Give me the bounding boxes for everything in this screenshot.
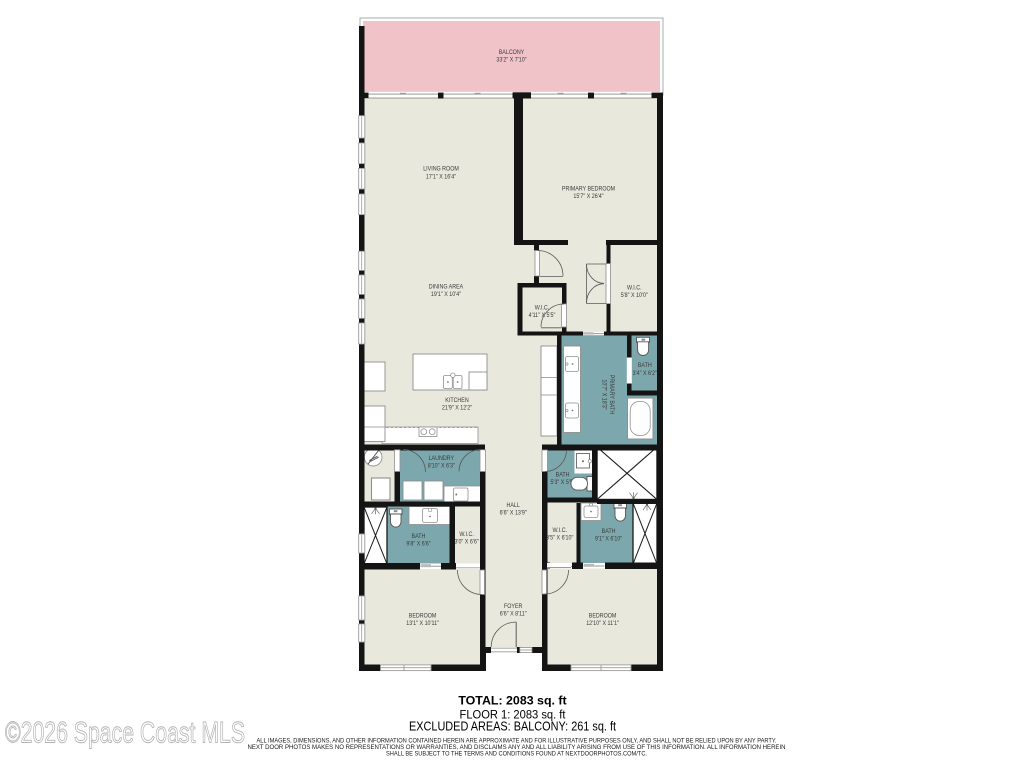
svg-text:W.I.C.: W.I.C. bbox=[627, 285, 642, 291]
svg-text:9'8" X 6'6": 9'8" X 6'6" bbox=[406, 541, 430, 547]
svg-text:HALL: HALL bbox=[507, 502, 521, 508]
svg-text:6'6" X 8'11": 6'6" X 8'11" bbox=[500, 611, 527, 617]
svg-text:9'1" X 6'10": 9'1" X 6'10" bbox=[595, 536, 622, 542]
svg-text:13'1" X 10'11": 13'1" X 10'11" bbox=[406, 621, 439, 627]
svg-text:10'7" X 18'3": 10'7" X 18'3" bbox=[600, 379, 606, 409]
svg-text:21'9" X 12'2": 21'9" X 12'2" bbox=[442, 405, 472, 411]
svg-text:33'2" X 7'10": 33'2" X 7'10" bbox=[496, 57, 526, 63]
svg-text:12'10" X 11'1": 12'10" X 11'1" bbox=[586, 621, 619, 627]
svg-text:W.I.C.: W.I.C. bbox=[553, 528, 568, 534]
svg-text:W.I.C.: W.I.C. bbox=[459, 532, 474, 538]
svg-text:TOTAL: 2083 sq. ft: TOTAL: 2083 sq. ft bbox=[458, 694, 566, 708]
svg-text:BALCONY: BALCONY bbox=[499, 49, 525, 55]
svg-text:SHALL BE SUBJECT TO THE TERMS: SHALL BE SUBJECT TO THE TERMS AND CONDIT… bbox=[386, 750, 647, 757]
svg-text:KITCHEN: KITCHEN bbox=[445, 397, 468, 403]
svg-text:8'10" X 6'3": 8'10" X 6'3" bbox=[428, 463, 455, 469]
svg-text:17'1" X 16'4": 17'1" X 16'4" bbox=[426, 174, 456, 180]
svg-text:19'1" X 10'4": 19'1" X 10'4" bbox=[431, 292, 461, 298]
svg-text:LAUNDRY: LAUNDRY bbox=[429, 455, 455, 461]
svg-text:BATH: BATH bbox=[412, 534, 426, 540]
svg-text:6'6" X 13'9": 6'6" X 13'9" bbox=[500, 510, 527, 516]
svg-text:W.I.C.: W.I.C. bbox=[535, 305, 550, 311]
svg-text:PRIMARY BEDROOM: PRIMARY BEDROOM bbox=[562, 186, 615, 192]
svg-text:15'7" X 26'4": 15'7" X 26'4" bbox=[573, 194, 603, 200]
svg-text:BEDROOM: BEDROOM bbox=[409, 613, 437, 619]
svg-text:5'8" X 10'0": 5'8" X 10'0" bbox=[621, 293, 648, 299]
svg-text:DINING AREA: DINING AREA bbox=[429, 284, 464, 290]
svg-text:EXCLUDED AREAS: BALCONY: 261 s: EXCLUDED AREAS: BALCONY: 261 sq. ft bbox=[409, 720, 616, 734]
svg-text:BATH: BATH bbox=[556, 472, 570, 478]
svg-text:BATH: BATH bbox=[638, 363, 652, 369]
svg-text:BATH: BATH bbox=[602, 529, 616, 535]
svg-text:BEDROOM: BEDROOM bbox=[589, 613, 617, 619]
svg-text:PRIMARY BATH: PRIMARY BATH bbox=[608, 375, 614, 414]
svg-text:4'11" X 5'5": 4'11" X 5'5" bbox=[529, 313, 556, 319]
svg-text:©2026 Space Coast MLS: ©2026 Space Coast MLS bbox=[5, 717, 245, 750]
svg-text:3'0" X 6'6": 3'0" X 6'6" bbox=[454, 539, 478, 545]
svg-text:3'5" X 6'10": 3'5" X 6'10" bbox=[546, 535, 573, 541]
svg-text:FOYER: FOYER bbox=[504, 604, 522, 610]
svg-text:LIVING ROOM: LIVING ROOM bbox=[423, 166, 459, 172]
svg-text:3'4" X 6'2": 3'4" X 6'2" bbox=[633, 370, 657, 376]
